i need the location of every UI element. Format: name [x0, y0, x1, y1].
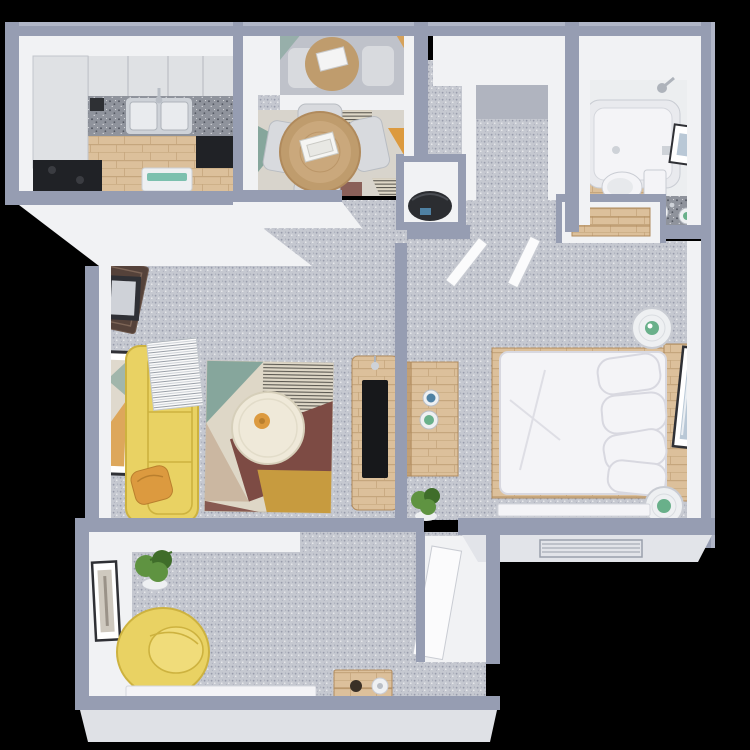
water-heater-label [420, 208, 431, 215]
kitchen-dining-wall [233, 22, 243, 192]
living-west-wall-face [99, 266, 111, 526]
east-outer-wall-edge [711, 22, 715, 548]
dining-table [280, 112, 360, 192]
den-west-wall [75, 518, 89, 702]
dining-half-wall-face [233, 202, 362, 228]
bench-teal-accent [147, 173, 187, 181]
nightstand-top [632, 308, 672, 348]
water-heater [408, 191, 452, 221]
nightstand-bottom-plant [657, 499, 671, 513]
den-chair [117, 608, 209, 696]
living-rug-mustard-shape [257, 470, 332, 513]
kitchen-left-wall-face [19, 36, 33, 191]
art-small-image [110, 280, 136, 315]
utility-closet [396, 154, 466, 230]
bedroom-east-wall-face [687, 241, 701, 520]
dining-nook [258, 33, 417, 212]
throw-blanket [147, 337, 204, 410]
closet-side-wall [556, 194, 562, 243]
sofa [126, 337, 203, 522]
bathtub-drain [612, 146, 620, 154]
living-bedroom-wall [395, 243, 407, 532]
kitchen-bench [142, 168, 192, 191]
kitchen-dishwasher [196, 136, 233, 168]
sink-right-basin [161, 102, 188, 130]
bedroom-north-wall-east [664, 225, 701, 239]
crate-hole [350, 680, 362, 692]
mirror-chair-reflection [362, 46, 394, 86]
dining-corridor-wall-face [404, 36, 414, 156]
dining-west-wall-face [243, 36, 258, 194]
kitchen-range [33, 160, 102, 191]
sink-left-basin [130, 102, 157, 130]
den-south-wall-outer-face [80, 710, 497, 742]
den-east-wall [486, 532, 500, 664]
range-burner [48, 166, 56, 174]
dresser [405, 362, 458, 476]
nightstand-top-plant [645, 321, 659, 335]
dining-wall-left-of-mirror [258, 36, 280, 95]
walkin-closet-shadow-band [476, 85, 548, 119]
coffee-table-top [232, 392, 304, 464]
living-den-wall-east [482, 518, 500, 532]
pillow [600, 391, 667, 434]
dining-wall-mirror [280, 33, 417, 95]
bathroom-west-wall-face [579, 36, 590, 225]
kitchen-tall-cabinet [33, 56, 88, 168]
kitchen-back-wall-face [19, 36, 233, 56]
candlestick [371, 362, 379, 370]
bed [492, 344, 692, 501]
dresser-cup-blue-inner [427, 394, 436, 403]
tv-screen [362, 380, 388, 478]
sofa-throw-blanket [147, 337, 204, 410]
baseboard-heater [498, 504, 650, 516]
west-outer-wall-kitchen [5, 22, 19, 205]
kitchen-counter-item [90, 98, 104, 111]
bathroom-back-wall-face [590, 36, 701, 80]
dining-half-wall [233, 190, 342, 202]
den-south-wall [75, 696, 500, 710]
dresser-cup-green-inner [424, 415, 434, 425]
floorplan-svg [0, 0, 750, 750]
sink-faucet-neck [158, 88, 161, 100]
vanity-faucet [670, 203, 675, 208]
nightstand-top-highlight [648, 324, 653, 329]
coffee-table [232, 392, 304, 464]
living-den-wall [75, 518, 424, 532]
den-art-frame [92, 561, 120, 640]
bedroom-plant-leaves [420, 499, 436, 515]
kitchen-south-wall [5, 191, 233, 205]
toilet-seat [607, 178, 633, 196]
range-top [33, 160, 102, 191]
bathtub-basin [594, 108, 672, 180]
bathroom-east-wall-face [687, 36, 701, 225]
crate-paper-roll-core [377, 683, 383, 689]
tv-stand [352, 356, 398, 510]
floorplan-render [0, 0, 750, 750]
den-closet-divider-wall [416, 532, 425, 662]
bedroom-north-wall-west [407, 225, 470, 239]
north-outer-wall-top [5, 22, 715, 26]
range-burner [76, 176, 84, 184]
coffee-table-decor-center [259, 418, 265, 424]
closet-bathroom-wall [565, 22, 579, 232]
den-plant-leaves [148, 562, 168, 582]
living-west-outer-wall [85, 266, 99, 530]
den-top-wall-face [89, 532, 300, 552]
dining-corridor-wall [414, 22, 428, 158]
corridor-end-wall [433, 36, 462, 86]
